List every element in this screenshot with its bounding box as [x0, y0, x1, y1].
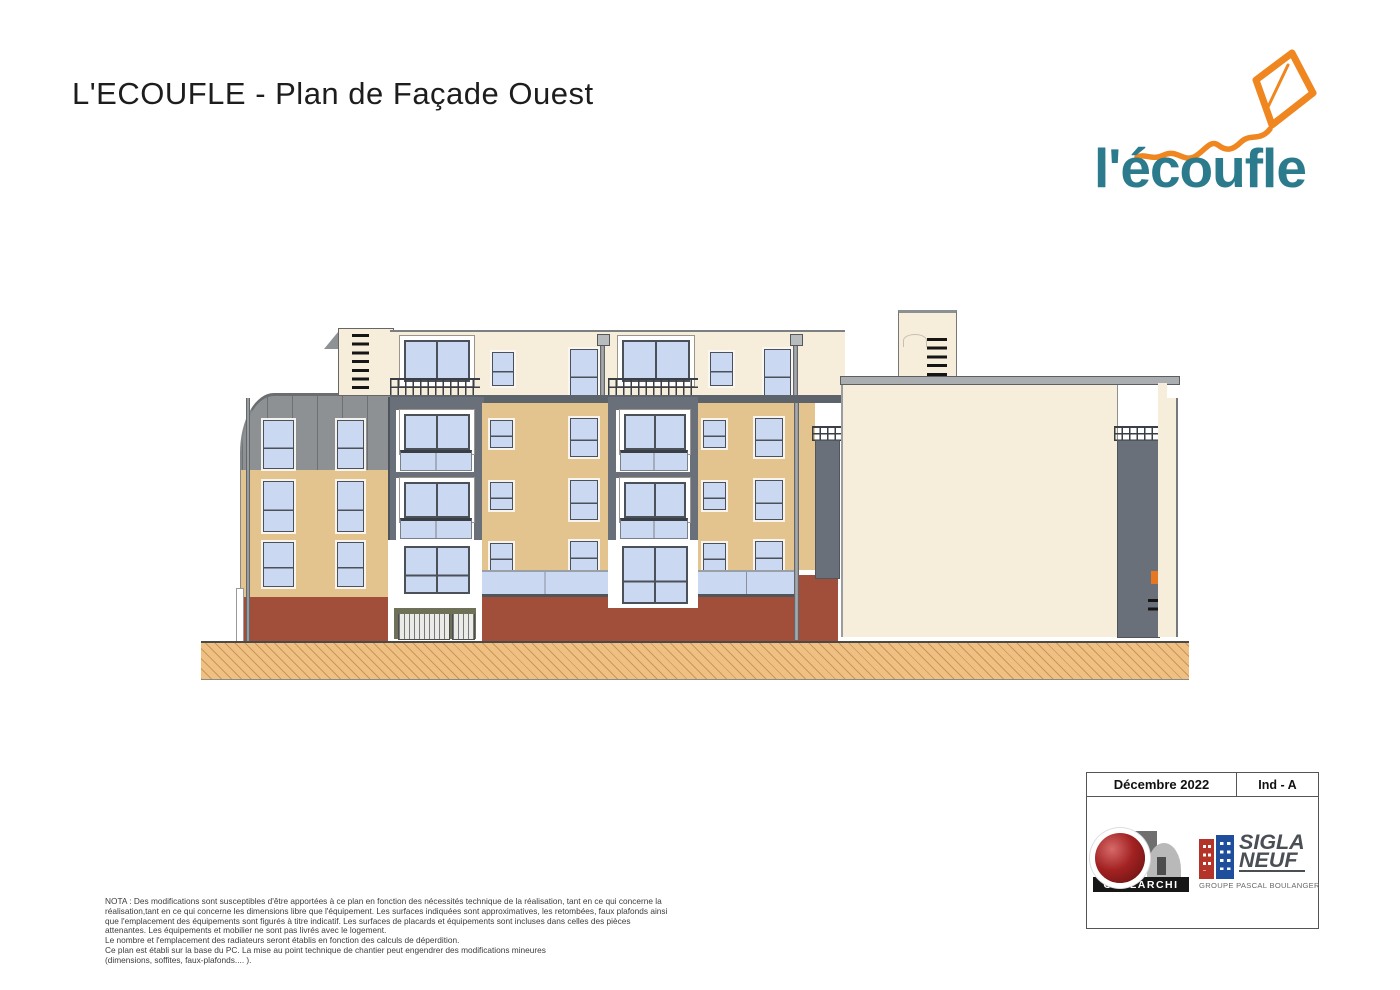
downspout: [794, 403, 799, 640]
title-block: Décembre 2022 Ind - A OPALARCHI SIGLA NE…: [1086, 772, 1319, 929]
window: [337, 420, 364, 469]
base-masonry: [482, 597, 608, 641]
eave: [324, 332, 338, 349]
window: [570, 349, 598, 398]
rain-collector: [790, 334, 803, 346]
glass-balustrade: [620, 518, 688, 539]
balcony-window: [624, 482, 686, 518]
nota-line: (dimensions, soffites, faux-plafonds....…: [105, 956, 667, 966]
date-cell: Décembre 2022: [1087, 773, 1237, 796]
balcony-railing: [812, 426, 841, 441]
ladder-icon: [352, 334, 369, 391]
ladder-icon: [1148, 599, 1158, 616]
window: [703, 543, 726, 571]
window: [755, 418, 783, 457]
window: [263, 542, 294, 587]
left-base: [240, 597, 388, 641]
base-masonry: [608, 608, 698, 641]
index-cell: Ind - A: [1237, 773, 1318, 796]
window: [570, 541, 598, 571]
downspout: [246, 398, 250, 641]
window: [570, 480, 598, 520]
ladder-icon: [927, 338, 947, 378]
balcony-window: [404, 340, 470, 382]
glass-balustrade: [620, 450, 688, 471]
window: [337, 542, 364, 587]
building-icon: [1216, 835, 1234, 879]
building-icon: [1207, 868, 1214, 879]
window: [764, 349, 791, 398]
window: [490, 420, 513, 448]
window: [755, 480, 783, 520]
canopy-glazing: [482, 570, 608, 599]
balcony-window: [624, 414, 686, 450]
window: [263, 420, 294, 469]
parapet-coping: [840, 376, 1180, 385]
siglaneuf-logo: SIGLA NEUF GROUPE PASCAL BOULANGER: [1199, 835, 1314, 895]
ground-strip: [201, 641, 1189, 680]
window: [703, 420, 726, 448]
window: [263, 481, 294, 532]
garage-door: [452, 614, 475, 640]
window: [622, 546, 688, 604]
window: [755, 541, 783, 571]
logo-shape: [1157, 857, 1166, 875]
window: [492, 352, 514, 386]
gable-wall: [841, 383, 1118, 637]
canopy-glazing: [698, 570, 795, 599]
logo-wordmark: l'écoufle: [1094, 136, 1306, 200]
neuf-word: NEUF: [1239, 851, 1305, 871]
nota-notes: NOTA : Des modifications sont susceptibl…: [105, 897, 667, 966]
window: [337, 481, 364, 532]
opalarchi-logo: OPALARCHI: [1093, 831, 1189, 899]
glass-balustrade: [400, 450, 472, 471]
vent-arc: [903, 334, 927, 347]
window: [404, 546, 470, 594]
window: [710, 352, 733, 386]
window: [490, 543, 513, 571]
window: [490, 482, 513, 510]
return-wall: [1158, 398, 1178, 637]
window: [570, 418, 598, 457]
group-caption: GROUPE PASCAL BOULANGER: [1199, 881, 1317, 890]
glass-balustrade: [400, 518, 472, 539]
balcony-window: [404, 414, 470, 450]
sheet: L'ECOUFLE - Plan de Façade Ouest l'écouf…: [0, 0, 1400, 990]
siglaneuf-wordmark: SIGLA NEUF: [1239, 833, 1305, 872]
title-block-header: Décembre 2022 Ind - A: [1087, 773, 1318, 797]
base-masonry: [799, 575, 838, 641]
logo-sphere: [1095, 833, 1145, 883]
recessed-panel: [815, 440, 840, 579]
balcony-window: [404, 482, 470, 518]
balcony-railing: [1114, 426, 1161, 441]
garage-door: [398, 614, 450, 640]
page-title: L'ECOUFLE - Plan de Façade Ouest: [72, 76, 594, 112]
corner-trim: [236, 588, 244, 643]
window: [703, 482, 726, 510]
rain-collector: [597, 334, 610, 346]
balcony-window: [622, 340, 690, 382]
